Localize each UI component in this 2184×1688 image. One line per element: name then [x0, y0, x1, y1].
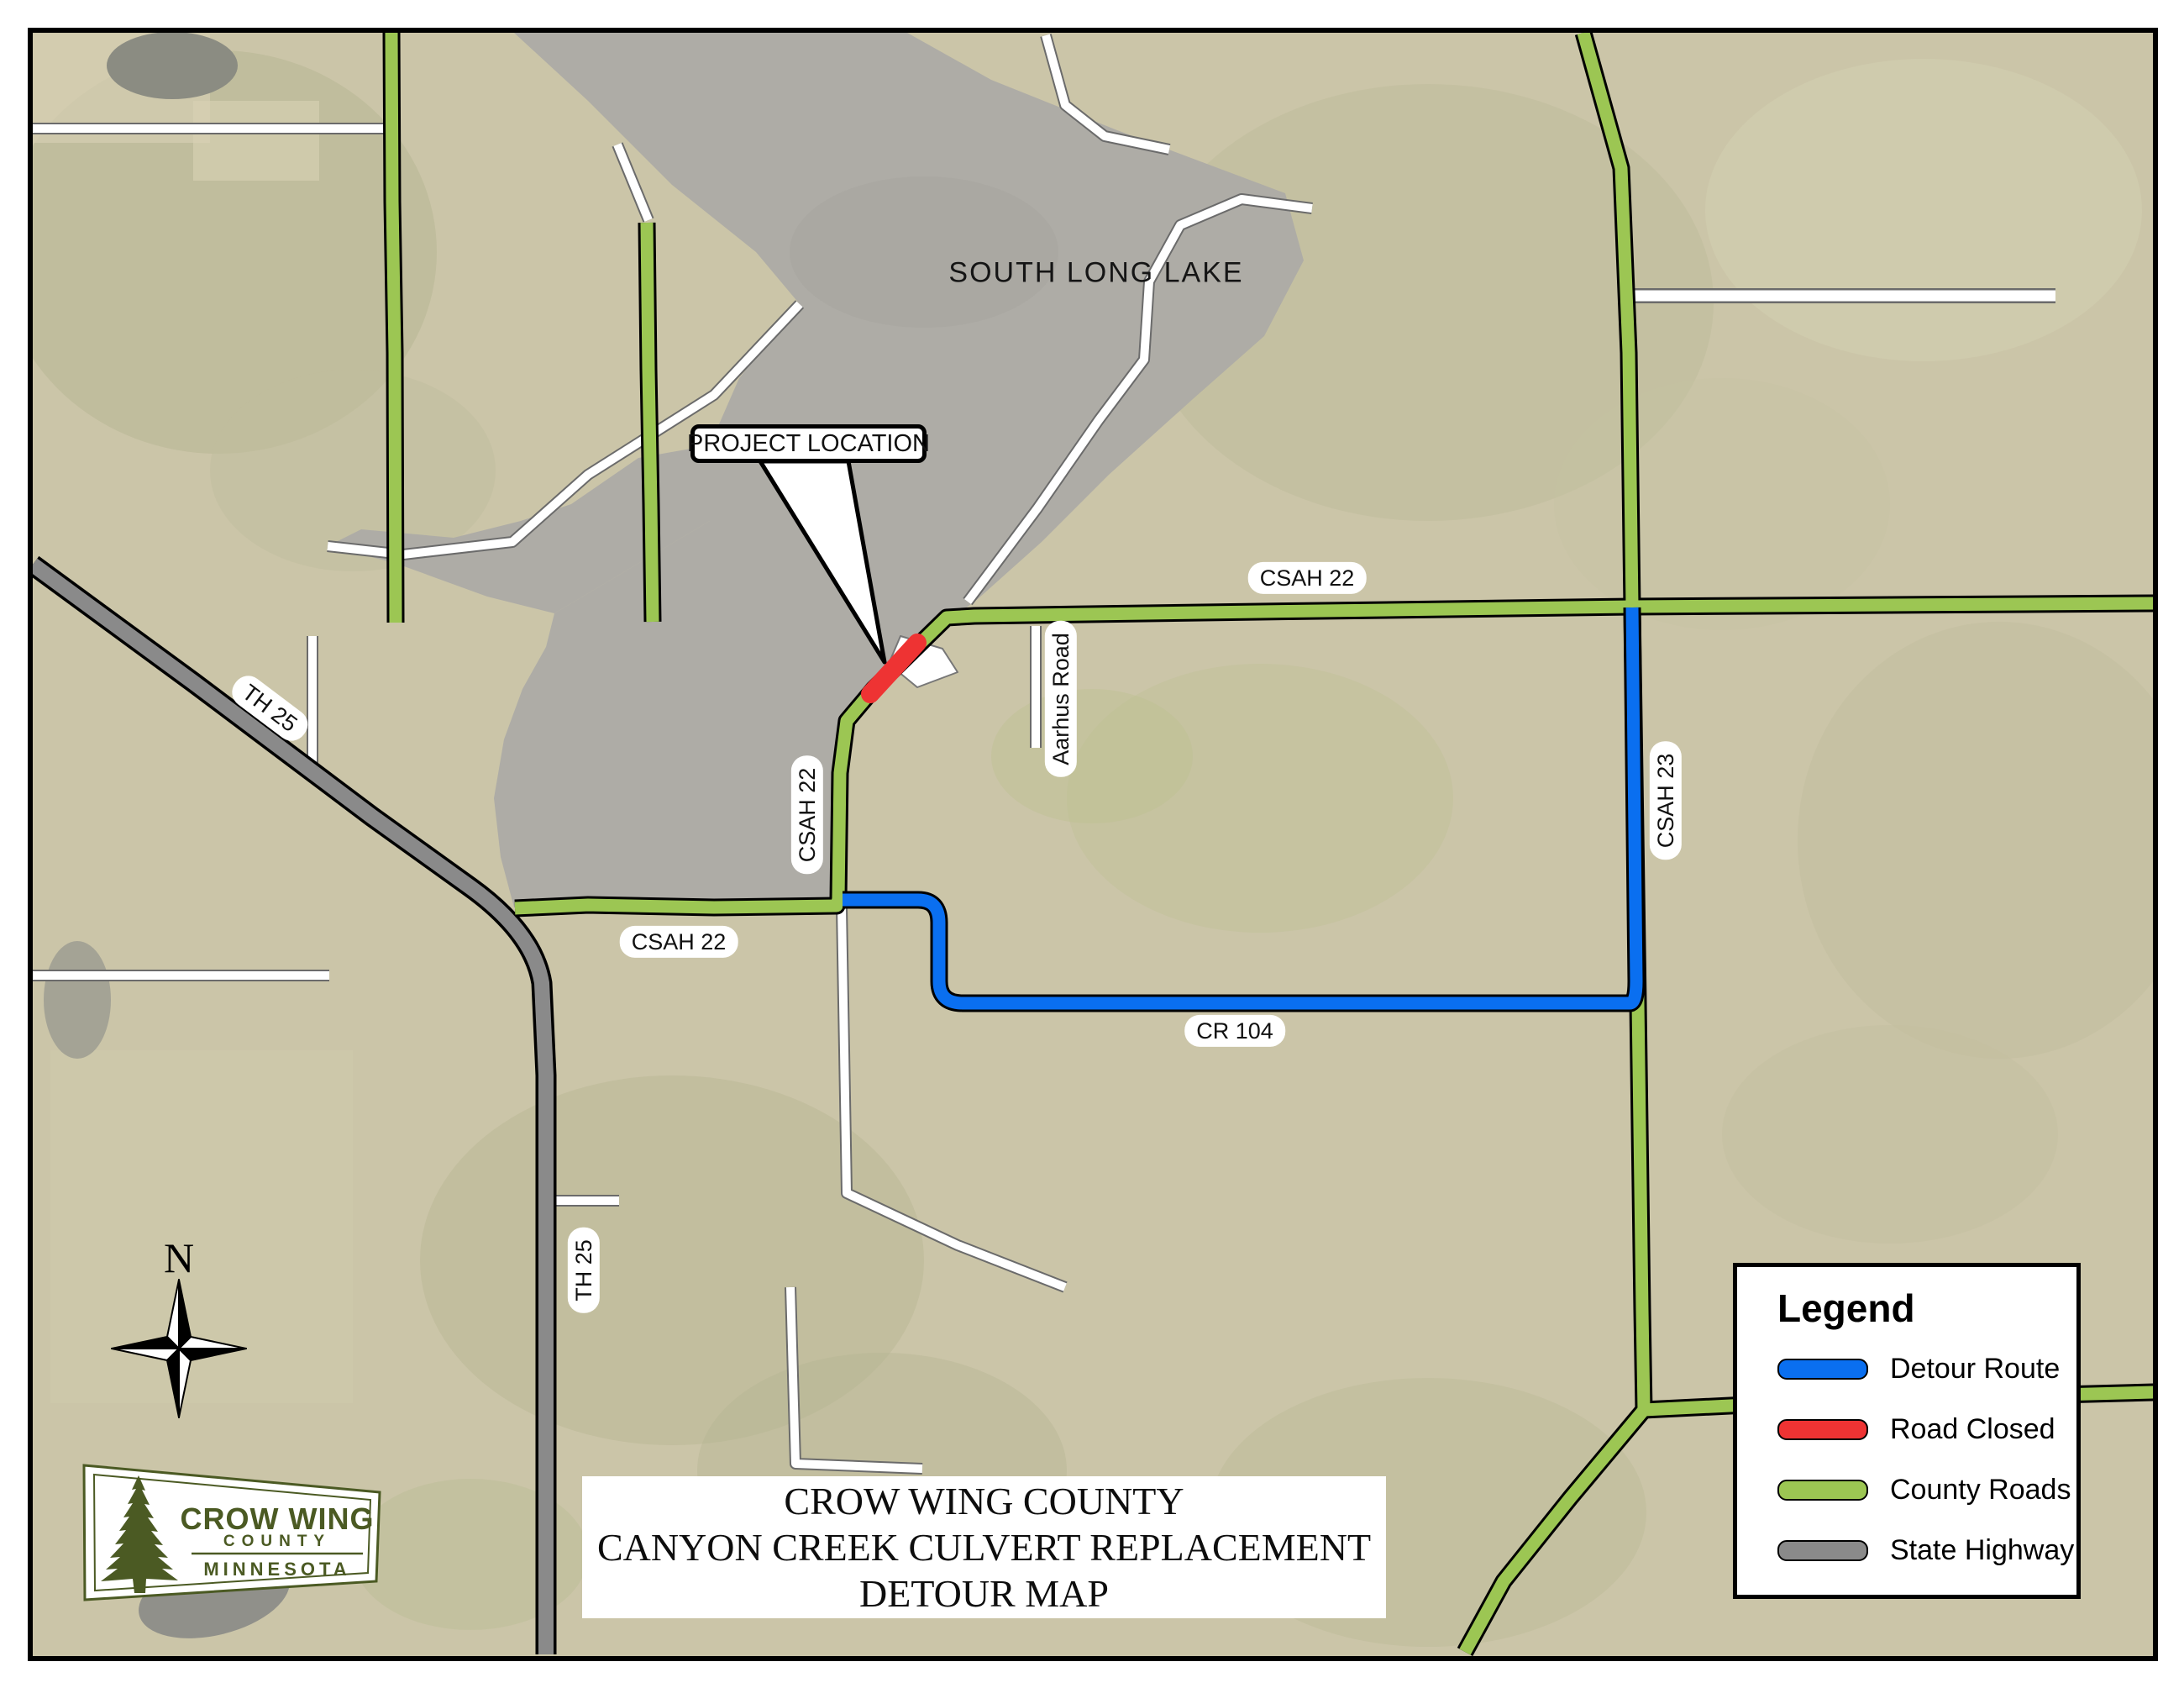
title-line-2: CANYON CREEK CULVERT REPLACEMENT — [597, 1524, 1371, 1570]
legend-item-label: County Roads — [1890, 1474, 2071, 1507]
pond-northwest — [107, 33, 238, 99]
road-label-aarhus-road: Aarhus Road — [1045, 621, 1077, 777]
pond-west — [44, 941, 111, 1059]
legend-item-state-highway: State Highway — [1777, 1534, 2076, 1567]
road-north-county — [391, 33, 396, 623]
lake-shade — [790, 176, 1058, 328]
legend-item-label: Road Closed — [1890, 1413, 2055, 1446]
legend-item-county-roads: County Roads — [1777, 1474, 2076, 1507]
detour-map-page: SOUTH LONG LAKE CSAH 22 CSAH 22 CSAH 22 … — [0, 0, 2184, 1688]
road-label-csah22-vertical: CSAH 22 — [791, 756, 823, 875]
road-label-csah22-top: CSAH 22 — [1248, 562, 1367, 594]
legend: Legend Detour Route Road Closed County R… — [1733, 1263, 2081, 1599]
legend-item-label: State Highway — [1890, 1534, 2074, 1567]
legend-item-detour-route: Detour Route — [1777, 1353, 2076, 1386]
north-label: N — [164, 1233, 194, 1282]
detour-route-swatch — [1777, 1359, 1868, 1380]
road-lake-county — [647, 223, 653, 622]
project-location-label: PROJECT LOCATION — [687, 430, 930, 458]
legend-title: Legend — [1777, 1286, 2076, 1331]
title-block: CROW WING COUNTY CANYON CREEK CULVERT RE… — [582, 1476, 1386, 1618]
county-logo: CROW WING COUNTY MINNESOTA — [76, 1458, 395, 1609]
road-label-csah23: CSAH 23 — [1650, 742, 1682, 860]
road-label-cr104: CR 104 — [1184, 1015, 1285, 1047]
title-line-1: CROW WING COUNTY — [784, 1478, 1184, 1524]
logo-county: COUNTY — [223, 1533, 331, 1550]
project-location-callout: PROJECT LOCATION — [690, 424, 927, 463]
county-roads-swatch — [1777, 1480, 1868, 1501]
legend-item-label: Detour Route — [1890, 1353, 2060, 1386]
state-highway-swatch — [1777, 1540, 1868, 1561]
legend-item-road-closed: Road Closed — [1777, 1413, 2076, 1446]
road-label-csah22-west: CSAH 22 — [620, 926, 738, 958]
logo-name: CROW WING — [181, 1501, 375, 1536]
title-line-3: DETOUR MAP — [859, 1570, 1109, 1617]
road-closed-swatch — [1777, 1419, 1868, 1440]
logo-state: MINNESOTA — [203, 1559, 350, 1580]
road-label-th25-vertical: TH 25 — [568, 1228, 600, 1313]
